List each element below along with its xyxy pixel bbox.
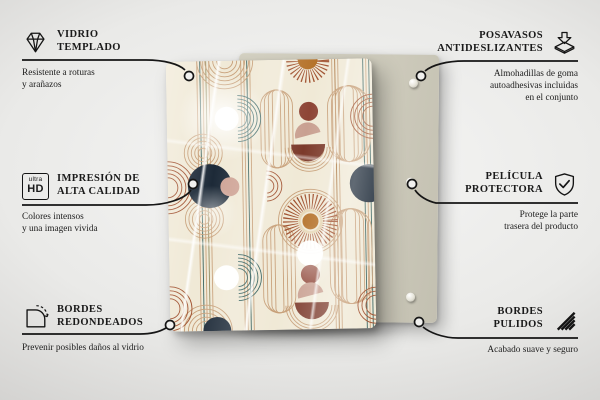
title-line: POSAVASOS	[437, 30, 543, 43]
callout-title-row: ultra HD IMPRESIÓN DE ALTA CALIDAD	[22, 170, 182, 202]
description-line: trasera del producto	[413, 221, 578, 233]
callout-impresion-alta-calidad: ultra HD IMPRESIÓN DE ALTA CALIDAD Color…	[22, 170, 182, 235]
printed-pattern	[166, 58, 377, 332]
title-line: IMPRESIÓN DE	[57, 173, 140, 186]
description-line: Prevenir posibles daños al vidrio	[22, 342, 202, 354]
shield-check-icon	[551, 171, 578, 198]
title-line: BORDES	[494, 306, 543, 319]
glass-panel	[166, 58, 377, 332]
title-line: TEMPLADO	[57, 42, 121, 55]
title-line: ANTIDESLIZANTES	[437, 43, 543, 56]
ultra-hd-icon-text: HD	[27, 184, 44, 195]
callout-description: Prevenir posibles daños al vidrio	[22, 342, 202, 354]
callout-description: Almohadillas de goma autoadhesivas inclu…	[413, 68, 578, 104]
diamond-icon	[22, 29, 49, 56]
callout-pelicula-protectora: PELÍCULA PROTECTORA Protege la parte tra…	[413, 168, 578, 233]
product-infographic: VIDRIO TEMPLADO Resistente a roturas y a…	[0, 0, 600, 400]
title-line: PULIDOS	[494, 319, 543, 332]
callout-title-row: BORDES REDONDEADOS	[22, 301, 202, 333]
callout-title-row: VIDRIO TEMPLADO	[22, 26, 182, 58]
non-slip-pads-icon	[551, 30, 578, 57]
callout-title-row: POSAVASOS ANTIDESLIZANTES	[413, 27, 578, 59]
callout-bordes-pulidos: BORDES PULIDOS Acabado suave y seguro	[413, 303, 578, 356]
callout-description: Resistente a roturas y arañazos	[22, 67, 182, 91]
callout-posavasos-antideslizantes: POSAVASOS ANTIDESLIZANTES Almohadillas d…	[413, 27, 578, 104]
ultra-hd-icon: ultra HD	[22, 173, 49, 200]
description-line: Protege la parte	[413, 209, 578, 221]
description-line: Acabado suave y seguro	[413, 344, 578, 356]
callout-title: BORDES REDONDEADOS	[57, 304, 143, 330]
title-line: VIDRIO	[57, 29, 121, 42]
description-line: Colores intensos	[22, 211, 182, 223]
callout-title: PELÍCULA PROTECTORA	[465, 171, 543, 197]
callout-title: IMPRESIÓN DE ALTA CALIDAD	[57, 173, 140, 199]
callout-title-row: BORDES PULIDOS	[413, 303, 578, 335]
title-line: BORDES	[57, 304, 143, 317]
description-line: autoadhesivas incluidas	[413, 80, 578, 92]
description-line: y una imagen vivida	[22, 223, 182, 235]
rubber-pad	[406, 293, 415, 302]
callout-title: VIDRIO TEMPLADO	[57, 29, 121, 55]
description-line: y arañazos	[22, 79, 182, 91]
callout-description: Colores intensos y una imagen vivida	[22, 211, 182, 235]
description-line: en el conjunto	[413, 92, 578, 104]
title-line: PELÍCULA	[465, 171, 543, 184]
description-line: Almohadillas de goma	[413, 68, 578, 80]
description-line: Resistente a roturas	[22, 67, 182, 79]
rounded-corners-icon	[22, 304, 49, 331]
title-line: PROTECTORA	[465, 184, 543, 197]
callout-title: BORDES PULIDOS	[494, 306, 543, 332]
title-line: ALTA CALIDAD	[57, 186, 140, 199]
title-line: REDONDEADOS	[57, 317, 143, 330]
callout-title-row: PELÍCULA PROTECTORA	[413, 168, 578, 200]
callout-vidrio-templado: VIDRIO TEMPLADO Resistente a roturas y a…	[22, 26, 182, 91]
callout-description: Protege la parte trasera del producto	[413, 209, 578, 233]
callout-description: Acabado suave y seguro	[413, 344, 578, 356]
callout-title: POSAVASOS ANTIDESLIZANTES	[437, 30, 543, 56]
polished-edges-icon	[551, 306, 578, 333]
callout-bordes-redondeados: BORDES REDONDEADOS Prevenir posibles dañ…	[22, 301, 202, 354]
